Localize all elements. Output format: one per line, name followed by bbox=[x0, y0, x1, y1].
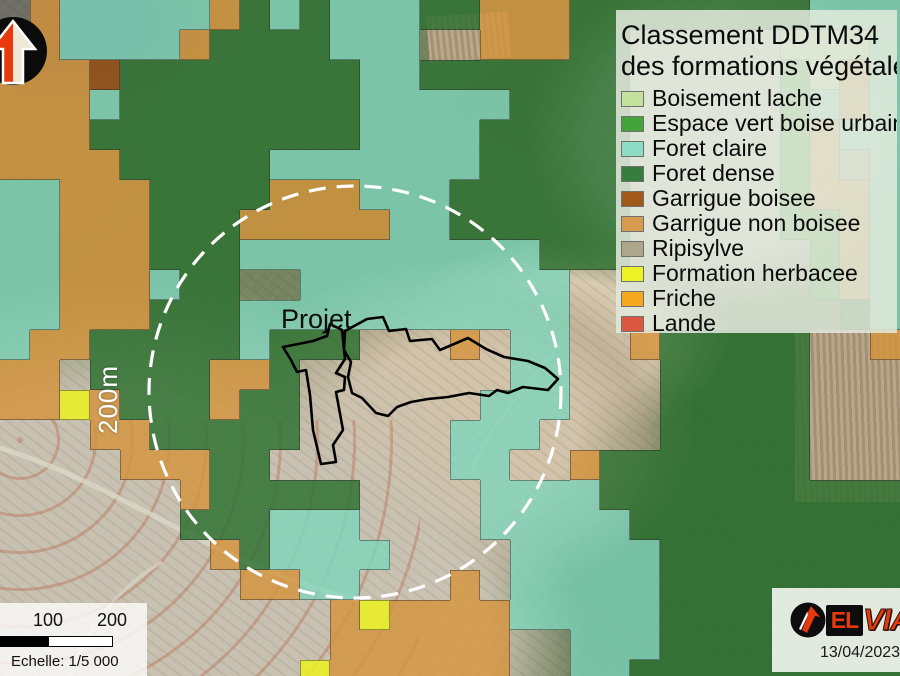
legend-item-label: Foret dense bbox=[652, 160, 775, 187]
date-label: 13/04/2023 bbox=[820, 644, 900, 662]
legend-title-line1: Classement DDTM34 bbox=[621, 20, 897, 51]
legend-item-label: Garrigue non boisee bbox=[652, 210, 860, 237]
legend-swatch bbox=[621, 166, 644, 182]
legend-swatch bbox=[621, 141, 644, 157]
legend-swatch bbox=[621, 191, 644, 207]
legend-swatch bbox=[621, 216, 644, 232]
legend-swatch bbox=[621, 291, 644, 307]
legend-panel: Classement DDTM34 des formations végétal… bbox=[616, 10, 897, 333]
map-container: Projet 200m Classement DDTM34 des format… bbox=[0, 0, 900, 676]
legend-item: Garrigue boisee bbox=[621, 186, 897, 211]
scale-segment-white bbox=[48, 636, 113, 647]
legend-item: Foret dense bbox=[621, 161, 897, 186]
legend-swatch bbox=[621, 116, 644, 132]
legend-item-label: Ripisylve bbox=[652, 235, 744, 262]
buffer-distance-label: 200m bbox=[93, 365, 124, 434]
logo-el-text: EL bbox=[826, 605, 863, 636]
legend-item: Lande bbox=[621, 311, 897, 333]
legend-item: Ripisylve bbox=[621, 236, 897, 261]
north-arrow-icon bbox=[0, 17, 48, 87]
legend-item-label: Boisement lache bbox=[652, 85, 822, 112]
legend-item: Formation herbacee bbox=[621, 261, 897, 286]
logo-elvia: EL VIA bbox=[790, 602, 900, 638]
legend-item-label: Foret claire bbox=[652, 135, 767, 162]
legend-item: Garrigue non boisee bbox=[621, 211, 897, 236]
buffer-circle-200m bbox=[149, 186, 561, 598]
logo-via-text: VIA bbox=[863, 602, 900, 638]
legend-item-label: Espace vert boise urbain bbox=[652, 110, 897, 137]
legend-swatch bbox=[621, 316, 644, 332]
legend-item-label: Friche bbox=[652, 285, 716, 312]
scale-bar: 100 200 m Echelle: 1/5 000 bbox=[0, 603, 147, 676]
legend-item: Friche bbox=[621, 286, 897, 311]
scale-ratio-label: Echelle: 1/5 000 bbox=[11, 653, 119, 670]
legend-swatch bbox=[621, 91, 644, 107]
legend-swatch bbox=[621, 241, 644, 257]
legend-item: Foret claire bbox=[621, 136, 897, 161]
legend-item-label: Lande bbox=[652, 310, 716, 333]
project-label: Projet bbox=[281, 304, 352, 335]
scale-tick-100: 100 bbox=[33, 610, 63, 631]
arrow-up-right-icon bbox=[790, 602, 827, 639]
scale-segment-black bbox=[0, 636, 48, 647]
legend-item-label: Formation herbacee bbox=[652, 260, 858, 287]
legend-swatch bbox=[621, 266, 644, 282]
legend-item-label: Garrigue boisee bbox=[652, 185, 816, 212]
legend-item: Boisement lache bbox=[621, 86, 897, 111]
legend-title-line2: des formations végétales bbox=[621, 51, 897, 82]
legend-item: Espace vert boise urbain bbox=[621, 111, 897, 136]
project-boundary-west bbox=[283, 324, 345, 464]
credits-panel: EL VIA 13/04/2023 bbox=[772, 588, 900, 672]
project-boundary-east bbox=[344, 317, 558, 416]
legend-items: Boisement lacheEspace vert boise urbainF… bbox=[621, 86, 897, 333]
